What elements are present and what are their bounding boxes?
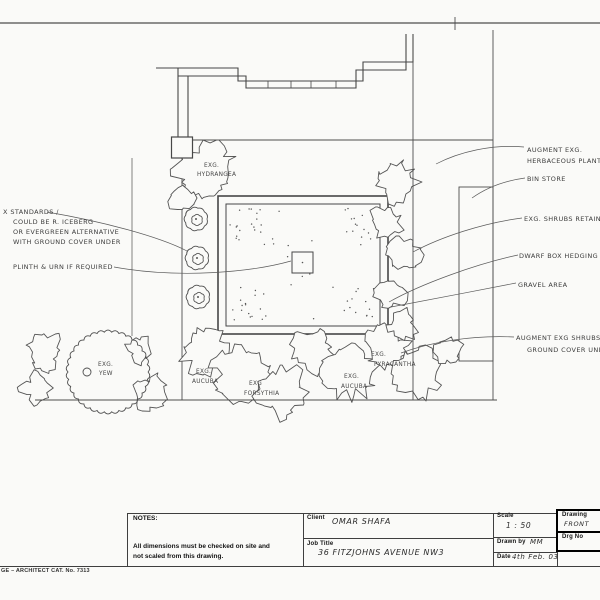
- yew-trunk: [83, 368, 91, 376]
- notes-text-line2: not scaled from this drawing.: [133, 553, 223, 560]
- leader-bin-store: [472, 178, 525, 198]
- shrub-outline: [370, 207, 404, 238]
- drawn-by-value: MM: [530, 538, 543, 546]
- gravel-dot: [260, 308, 261, 309]
- label-aucuba-b-line1: EXG.: [344, 374, 359, 380]
- label-pyracantha-line2: PYRACANTHA: [374, 362, 416, 368]
- gravel-dot: [255, 290, 256, 291]
- gravel-dot: [365, 301, 366, 302]
- gravel-dot: [366, 315, 367, 316]
- gravel-dot: [346, 231, 347, 232]
- label-yew-line1: EXG.: [98, 362, 113, 368]
- title-block-divider-1: [127, 513, 128, 566]
- label-forsythia-line2: FORSYTHIA: [244, 391, 279, 397]
- gravel-dot: [290, 284, 291, 285]
- gravel-dot: [234, 319, 235, 320]
- rose-standard-centre: [195, 218, 197, 220]
- gravel-dot: [362, 215, 363, 216]
- gravel-dot: [265, 315, 266, 316]
- gravel-dot: [254, 295, 255, 296]
- shrub-outline: [386, 236, 425, 270]
- gravel-dot: [313, 318, 314, 319]
- label-hydrangea-line1: EXG.: [204, 163, 219, 169]
- gravel-dot: [241, 310, 242, 311]
- gravel-dot: [351, 298, 352, 299]
- gravel-dot: [262, 319, 263, 320]
- gravel-dot: [360, 244, 361, 245]
- gravel-dot: [240, 287, 241, 288]
- building-outer-wall: [156, 34, 413, 81]
- gravel-dot: [240, 300, 241, 301]
- annotation-augment-line2: GROUND COVER UNDER: [527, 346, 600, 354]
- annotation-herbaceous-line1: AUGMENT EXG.: [527, 146, 582, 154]
- gravel-dot: [344, 310, 345, 311]
- bin-store-outline: [459, 187, 493, 361]
- gravel-dot: [370, 238, 371, 239]
- job-title-label: Job Title: [307, 541, 333, 547]
- bay-mullions: [268, 81, 336, 88]
- gravel-dot: [309, 273, 310, 274]
- gravel-dot: [256, 218, 257, 219]
- title-block-bottom-border: [0, 566, 600, 567]
- gravel-dot: [241, 305, 242, 306]
- title-block-divider-3: [493, 513, 494, 566]
- annotation-standards-line3: OR EVERGREEN ALTERNATIVE: [13, 228, 119, 236]
- urn-dot: [302, 262, 304, 264]
- shrub-outline: [133, 373, 167, 411]
- gravel-dot: [361, 236, 362, 237]
- shrub-outline: [125, 336, 152, 366]
- gravel-dot: [347, 208, 348, 209]
- leader-lines: [47, 146, 525, 353]
- title-block-divider-2: [303, 513, 304, 566]
- annotation-standards-line2: COULD BE R. ICEBERG: [13, 218, 93, 226]
- gravel-dot: [236, 236, 237, 237]
- gravel-dot: [352, 231, 353, 232]
- gravel-dot: [251, 316, 252, 317]
- label-yew-line2: YEW: [98, 371, 113, 377]
- gravel-dot: [245, 303, 246, 304]
- annotation-standards-line1: X STANDARDS /: [3, 208, 59, 216]
- leader-herbaceous: [436, 146, 524, 164]
- gravel-dot: [347, 300, 348, 301]
- gravel-dot: [261, 224, 262, 225]
- leader-shrubs-retained: [413, 218, 522, 252]
- notes-text-line1: All dimensions must be checked on site a…: [133, 543, 270, 550]
- rose-standard-inner: [192, 214, 203, 225]
- gravel-dot: [273, 243, 274, 244]
- scale-label: Scale: [497, 513, 514, 519]
- gravel-dot: [239, 230, 240, 231]
- gravel-dot: [356, 225, 357, 226]
- gravel-dot: [355, 312, 356, 313]
- urn-plinth: [292, 252, 313, 273]
- shrub-outlines: [17, 140, 464, 422]
- shrub-outline: [376, 160, 422, 206]
- pillar: [172, 137, 193, 158]
- gravel-dot: [250, 316, 251, 317]
- gravel-dot: [251, 223, 252, 224]
- gravel-dot: [345, 209, 346, 210]
- drg-no-label: Drg No: [562, 534, 583, 540]
- gravel-dot: [349, 307, 350, 308]
- building-left-wall: [178, 68, 188, 137]
- gravel-dot: [238, 239, 239, 240]
- gravel-dot: [229, 224, 230, 225]
- annotation-shrubs-retained: EXG. SHRUBS RETAINED: [524, 215, 600, 223]
- scale-drawn-divider: [493, 537, 557, 538]
- client-job-divider: [303, 538, 493, 539]
- label-pyracantha-line1: EXG.: [371, 352, 386, 358]
- gravel-dot: [355, 291, 356, 292]
- label-aucuba-a-line2: AUCUBA: [192, 379, 218, 385]
- leader-gravel: [391, 283, 516, 307]
- gravel-dot: [357, 288, 358, 289]
- gravel-dot: [232, 309, 233, 310]
- shrub-outline: [26, 333, 60, 373]
- rose-standard-inner: [193, 253, 204, 264]
- notes-label: NOTES:: [133, 515, 158, 522]
- shrub-outline: [17, 370, 53, 407]
- client-value: OMAR SHAFA: [332, 517, 391, 526]
- annotation-plinth: PLINTH & URN IF REQUIRED: [13, 263, 113, 271]
- gravel-dot: [302, 276, 303, 277]
- drawn-by-label: Drawn by: [497, 539, 526, 545]
- catalog-footer-text: GE – ARCHITECT CAT. No. 7313: [1, 568, 90, 574]
- gravel-dot: [245, 304, 246, 305]
- rose-standard-centre: [196, 257, 198, 259]
- gravel-dot: [311, 240, 312, 241]
- gravel-dot: [253, 226, 254, 227]
- annotation-augment-line1: AUGMENT EXG SHRUBS: [516, 334, 600, 342]
- rose-standard-centre: [197, 296, 199, 298]
- label-aucuba-b-line2: AUCUBA: [341, 384, 367, 390]
- gravel-dot: [272, 238, 273, 239]
- annotation-standards-line4: WITH GROUND COVER UNDER: [13, 238, 121, 246]
- gravel-dot: [351, 218, 352, 219]
- gravel-dot: [256, 213, 257, 214]
- label-forsythia-line1: EXG: [249, 381, 262, 387]
- gravel-dot: [369, 309, 370, 310]
- annotation-dwarf-box: DWARF BOX HEDGING: [519, 252, 598, 260]
- gravel-dot: [260, 231, 261, 232]
- label-aucuba-a-line1: EXG.: [196, 369, 211, 375]
- drawing-title-cell: Drawing FRONT: [558, 511, 600, 533]
- building-footprint: [156, 34, 413, 158]
- gravel-dot: [254, 229, 255, 230]
- client-label: Client: [307, 515, 325, 521]
- label-hydrangea-line2: HYDRANGEA: [197, 172, 236, 178]
- gravel-dot: [264, 244, 265, 245]
- building-inner-wall: [178, 34, 406, 88]
- gravel-dot: [248, 313, 249, 314]
- gravel-dot: [236, 225, 237, 226]
- job-title-value: 36 FITZJOHNS AVENUE NW3: [318, 548, 444, 557]
- gravel-dot: [239, 210, 240, 211]
- gravel-dot: [288, 245, 289, 246]
- annotation-bin-store: BIN STORE: [527, 175, 566, 183]
- gravel-dot: [259, 209, 260, 210]
- drawing-value: FRONT: [564, 520, 589, 528]
- annotation-gravel: GRAVEL AREA: [518, 281, 568, 289]
- gravel-dot: [251, 208, 252, 209]
- gravel-dot: [278, 211, 279, 212]
- annotation-herbaceous-line2: HERBACEOUS PLANTING: [527, 157, 600, 165]
- gravel-dot: [363, 229, 364, 230]
- drawing-number-box: Drawing FRONT Drg No: [556, 509, 600, 552]
- gravel-dot: [236, 238, 237, 239]
- drawing-label: Drawing: [562, 512, 587, 518]
- gravel-dot: [372, 316, 373, 317]
- drawing-sheet: EXG. HYDRANGEA EXG. YEW EXG. AUCUBA EXG …: [0, 0, 600, 600]
- gravel-dot: [263, 293, 264, 294]
- margin-annotations: X STANDARDS / COULD BE R. ICEBERG OR EVE…: [3, 146, 600, 354]
- gravel-dot: [287, 256, 288, 257]
- gravel-dot: [355, 224, 356, 225]
- gravel-dot: [368, 232, 369, 233]
- plan-svg: EXG. HYDRANGEA EXG. YEW EXG. AUCUBA EXG …: [0, 0, 600, 505]
- gravel-dot: [332, 287, 333, 288]
- site-lines-over: [35, 30, 497, 400]
- gravel-dot: [248, 208, 249, 209]
- scale-value: 1 : 50: [506, 521, 531, 530]
- rose-standard-inner: [194, 292, 205, 303]
- date-value: 4th Feb. 03: [512, 553, 559, 561]
- title-block-top-border: [127, 513, 600, 514]
- gravel-dot: [354, 218, 355, 219]
- date-label: Date: [497, 554, 511, 560]
